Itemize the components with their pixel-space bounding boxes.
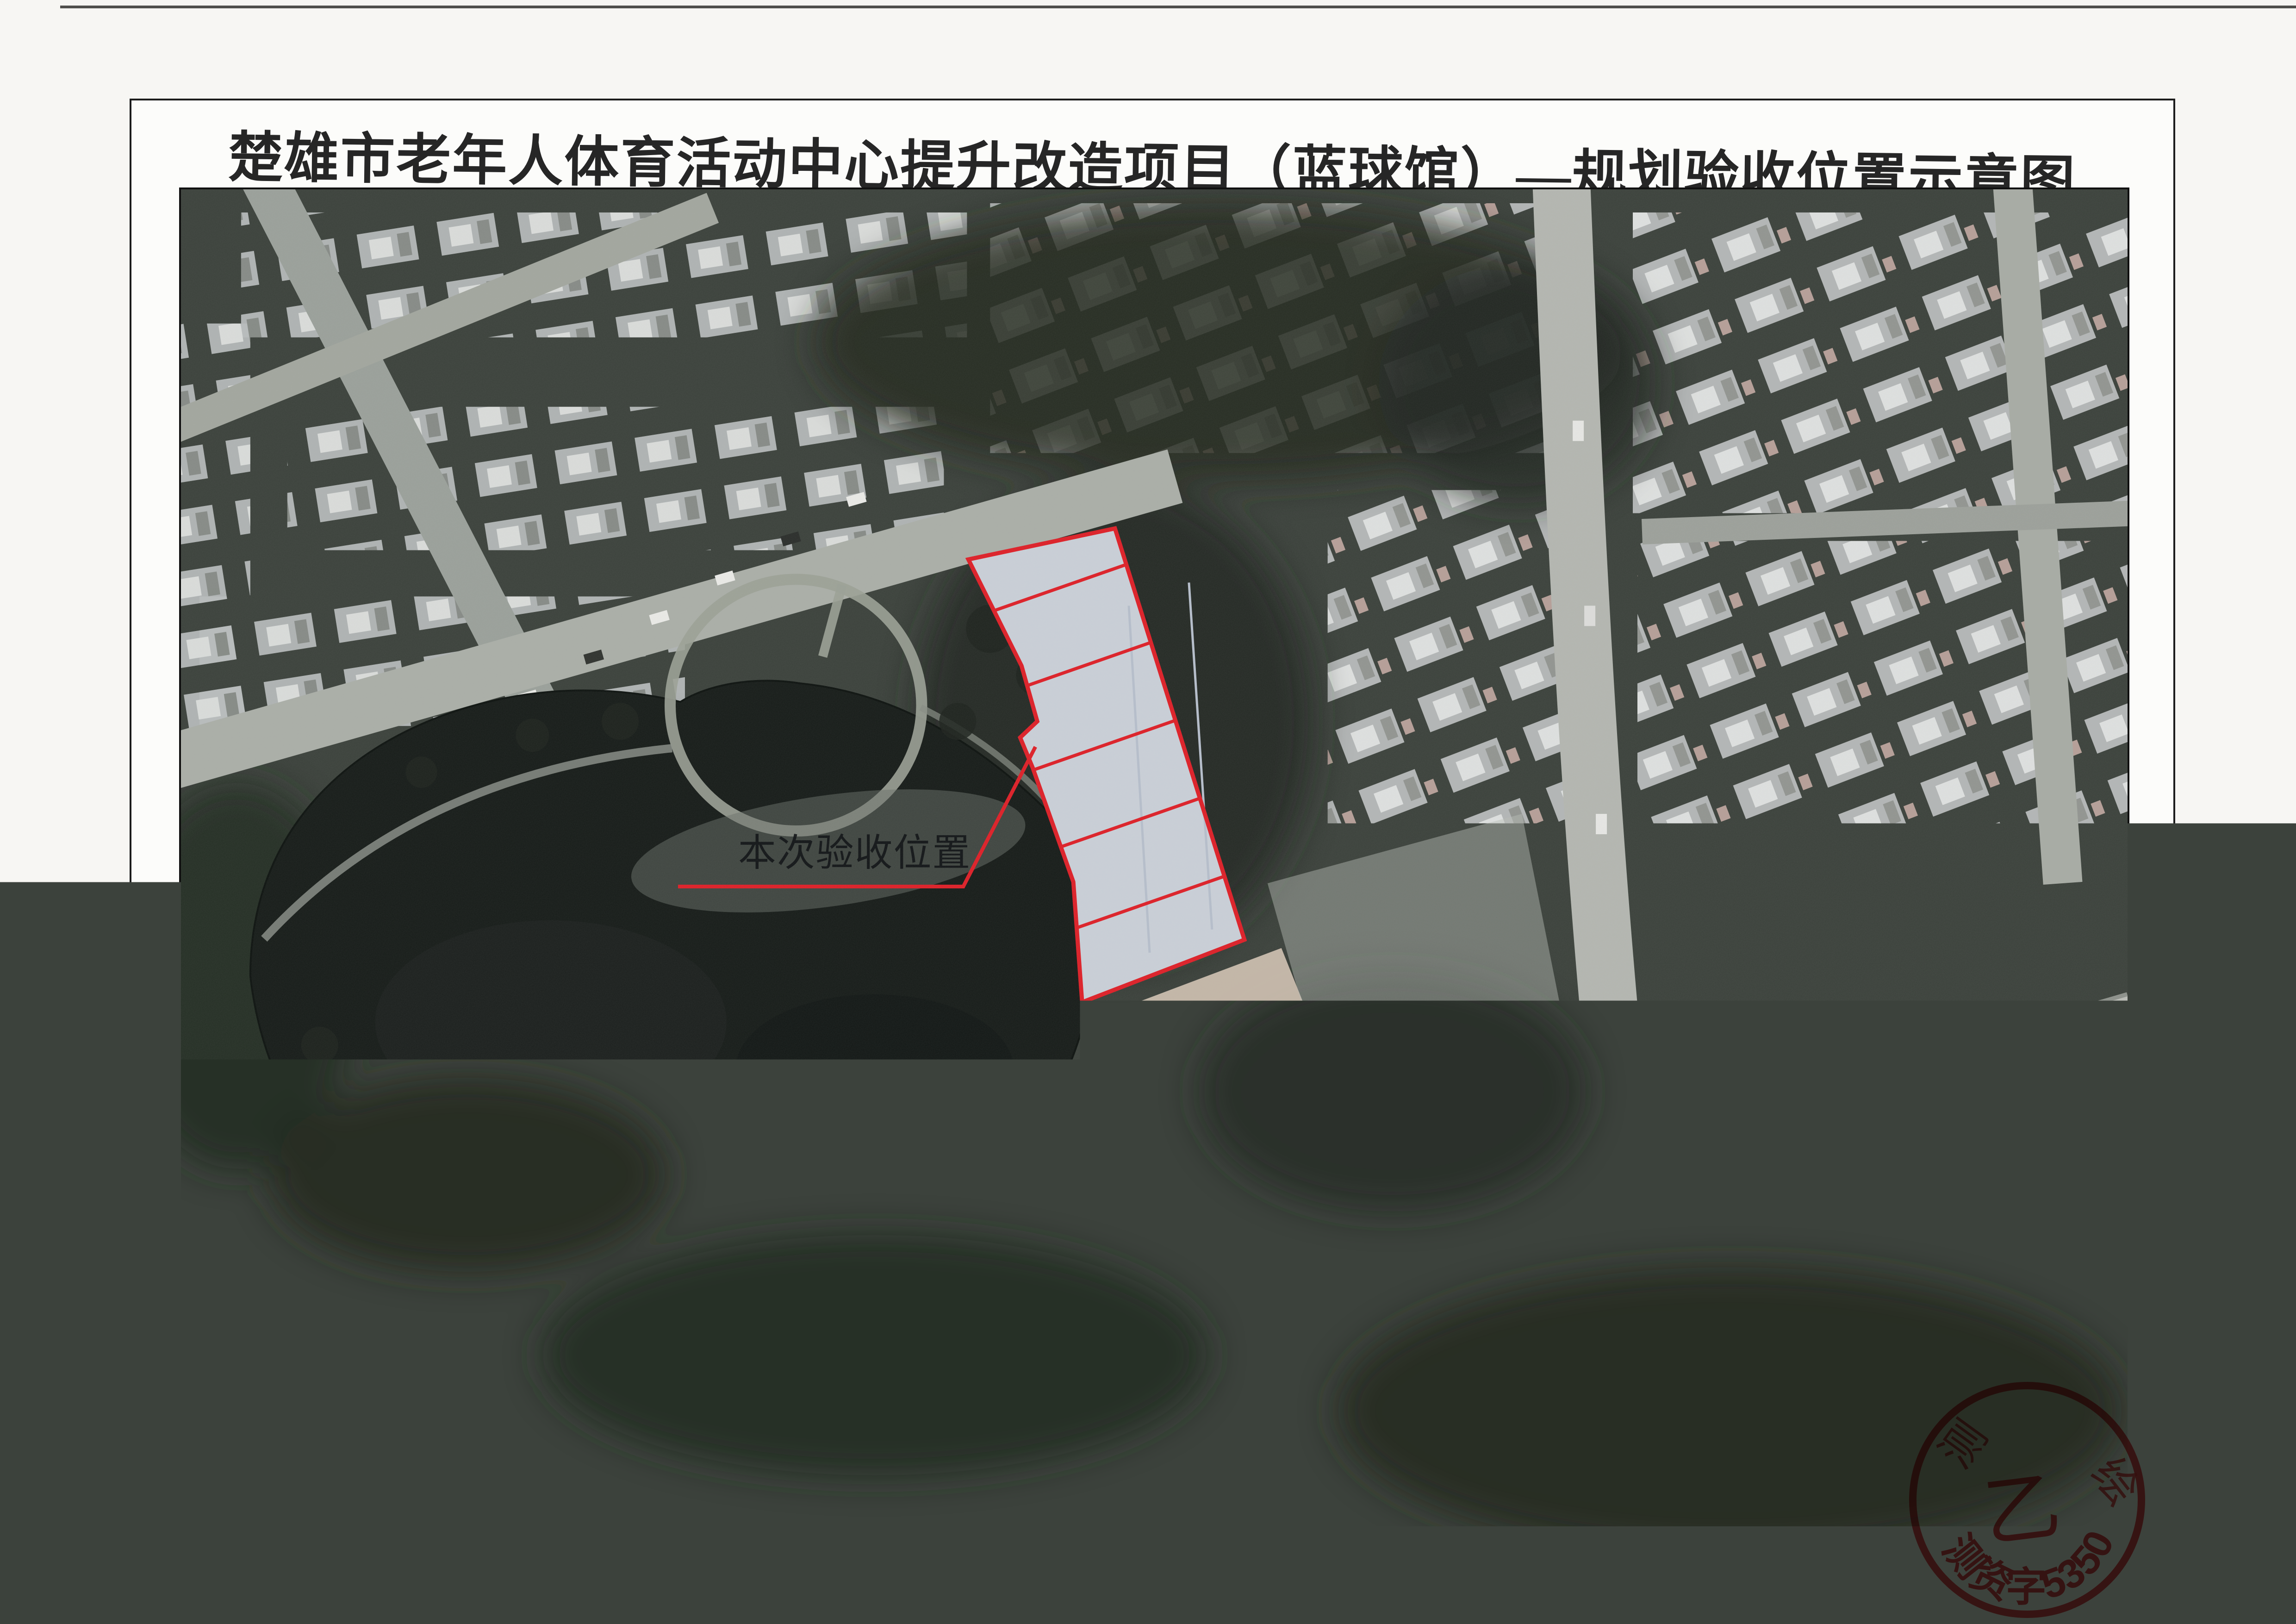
scan-grain [181,189,2128,1526]
satellite-map-canvas: 本次验收位置 阳光大道 源生大药房 [181,189,2128,1526]
seal-grade: 乙 [1979,1464,2066,1557]
surveyor-seal-stamp: 乙 测 绘 测资字53506060 [1904,1376,2151,1624]
scanned-page: 楚雄市老年人体育活动中心提升改造项目（蓝球馆）—规划验收位置示意图 [0,0,2296,1624]
satellite-map: 本次验收位置 阳光大道 源生大药房 [179,187,2129,1528]
scan-artifact-top [60,6,2296,8]
seal-canvas: 乙 测 绘 测资字53506060 [1904,1376,2151,1624]
border-frame: 楚雄市老年人体育活动中心提升改造项目（蓝球馆）—规划验收位置示意图 [130,99,2175,1607]
scan-artifact-bottom [0,1618,2194,1620]
